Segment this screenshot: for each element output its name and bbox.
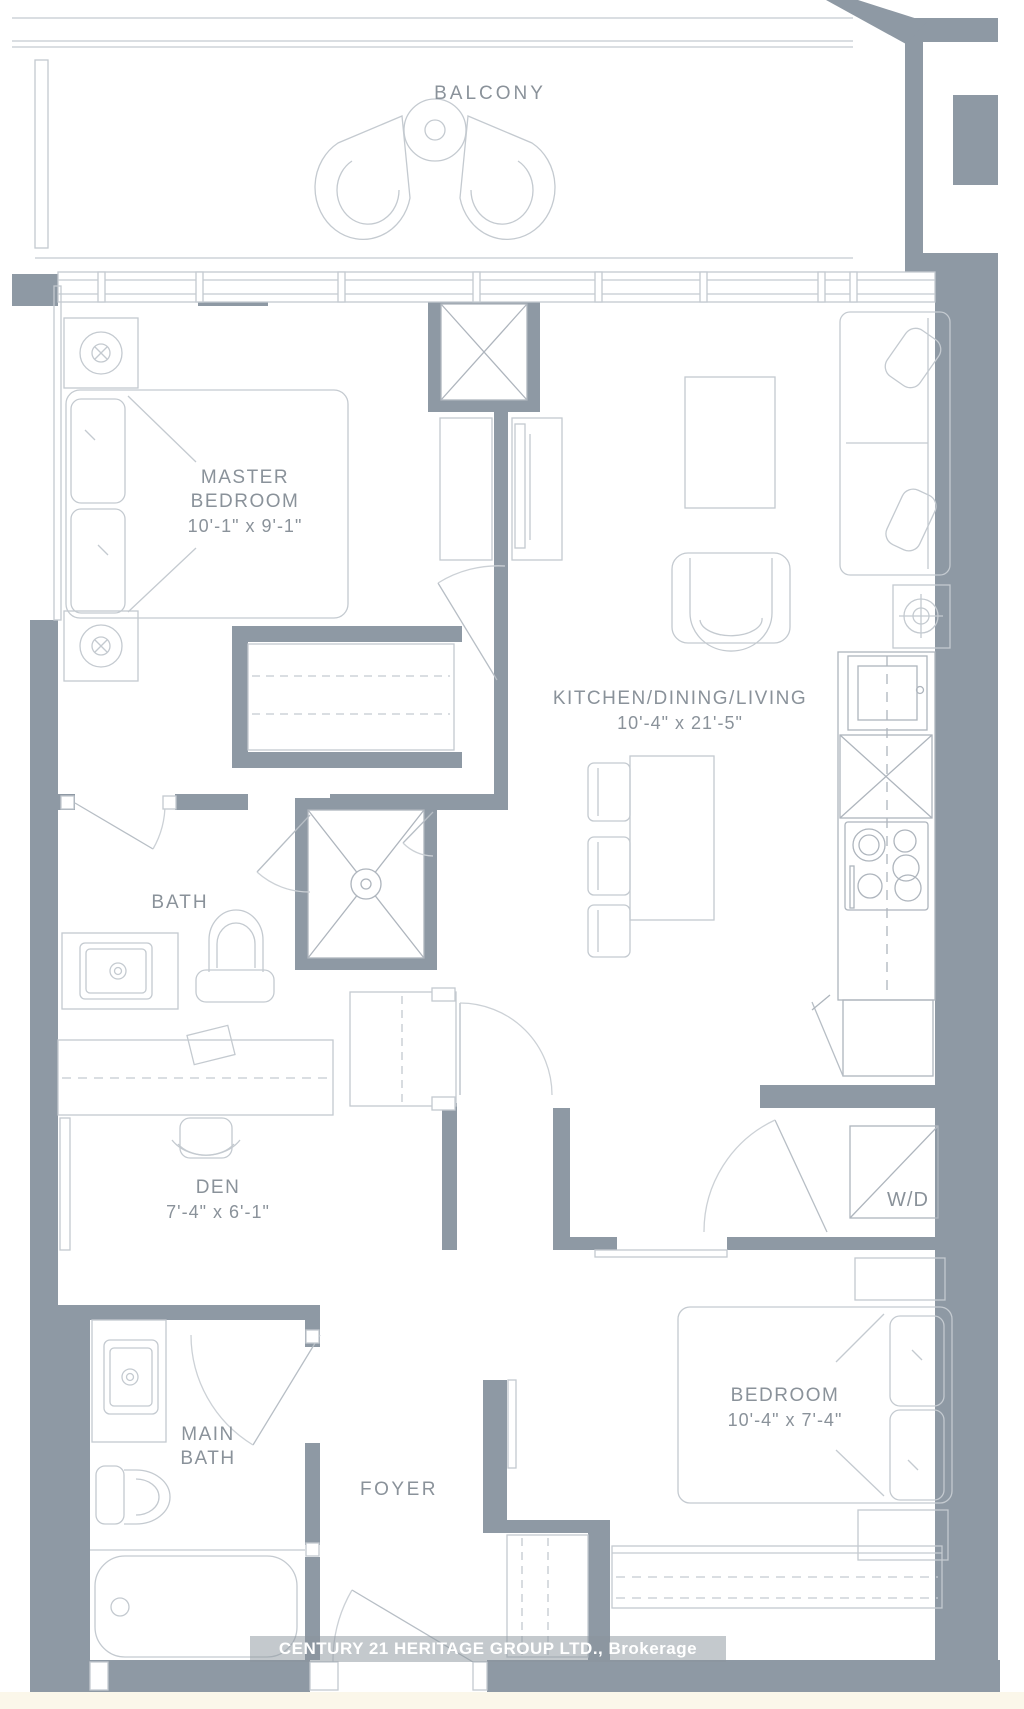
desk-chair-icon <box>172 1118 240 1158</box>
master-window <box>54 286 61 620</box>
main-bath-toilet-icon <box>96 1466 170 1524</box>
armchair-icon <box>672 553 790 651</box>
bath-label: BATH <box>130 891 230 915</box>
shower-door <box>257 815 310 892</box>
room-dimensions: 10'-4" x 7'-4" <box>655 1408 915 1432</box>
laundry-door <box>704 1120 827 1232</box>
room-name: BATH <box>153 1447 263 1471</box>
dining-table-icon <box>588 756 714 957</box>
room-name: KITCHEN/DINING/LIVING <box>500 687 860 711</box>
foyer-closet-icon <box>507 1380 588 1657</box>
room-name: BEDROOM <box>125 490 365 514</box>
room-dimensions: 10'-1" x 9'-1" <box>125 514 365 538</box>
side-table-lamp-icon <box>893 585 950 648</box>
nightstand-lamp-icon <box>64 611 138 681</box>
laundry-label: W/D <box>872 1188 944 1212</box>
room-name: BEDROOM <box>655 1384 915 1408</box>
window-band <box>58 272 935 302</box>
toilet-icon <box>196 910 274 1002</box>
main-bath-label: MAIN BATH <box>153 1423 263 1471</box>
sofa-icon <box>840 312 950 575</box>
balcony-chair-icon <box>315 116 410 239</box>
room-name: MASTER <box>125 466 365 490</box>
bedroom-label: BEDROOM 10'-4" x 7'-4" <box>655 1384 915 1432</box>
master-door <box>438 566 505 680</box>
balcony-label: BALCONY <box>390 82 590 106</box>
coffee-table-icon <box>685 377 775 508</box>
den-label: DEN 7'-4" x 6'-1" <box>118 1176 318 1224</box>
room-dimensions: 10'-4" x 21'-5" <box>500 711 860 735</box>
bedroom-closet-icon <box>612 1546 942 1608</box>
nightstand-lamp-icon <box>64 318 138 388</box>
shaft-icon <box>441 304 527 400</box>
master-closet-icon <box>248 644 454 750</box>
room-name: DEN <box>118 1176 318 1200</box>
foyer-label: FOYER <box>329 1478 469 1502</box>
kitchen-dining-living-label: KITCHEN/DINING/LIVING 10'-4" x 21'-5" <box>500 687 860 735</box>
balcony-table-icon <box>404 99 466 161</box>
floor-plan: BALCONY MASTER BEDROOM 10'-1" x 9'-1" KI… <box>0 0 1024 1709</box>
bath-door <box>61 796 176 849</box>
room-dimensions: 7'-4" x 6'-1" <box>118 1200 318 1224</box>
bath-vanity-icon <box>62 933 178 1009</box>
hall-closet-icon <box>440 418 562 560</box>
balcony-rail <box>12 18 853 258</box>
balcony-corner-wall <box>826 0 927 44</box>
shower-icon <box>308 810 424 958</box>
master-bedroom-label: MASTER BEDROOM 10'-1" x 9'-1" <box>125 466 365 538</box>
brokerage-watermark: CENTURY 21 HERITAGE GROUP LTD., Brokerag… <box>250 1636 726 1662</box>
bedroom-sliding-door <box>595 1250 727 1257</box>
balcony-chair-icon <box>460 116 555 239</box>
room-name: MAIN <box>153 1423 263 1447</box>
